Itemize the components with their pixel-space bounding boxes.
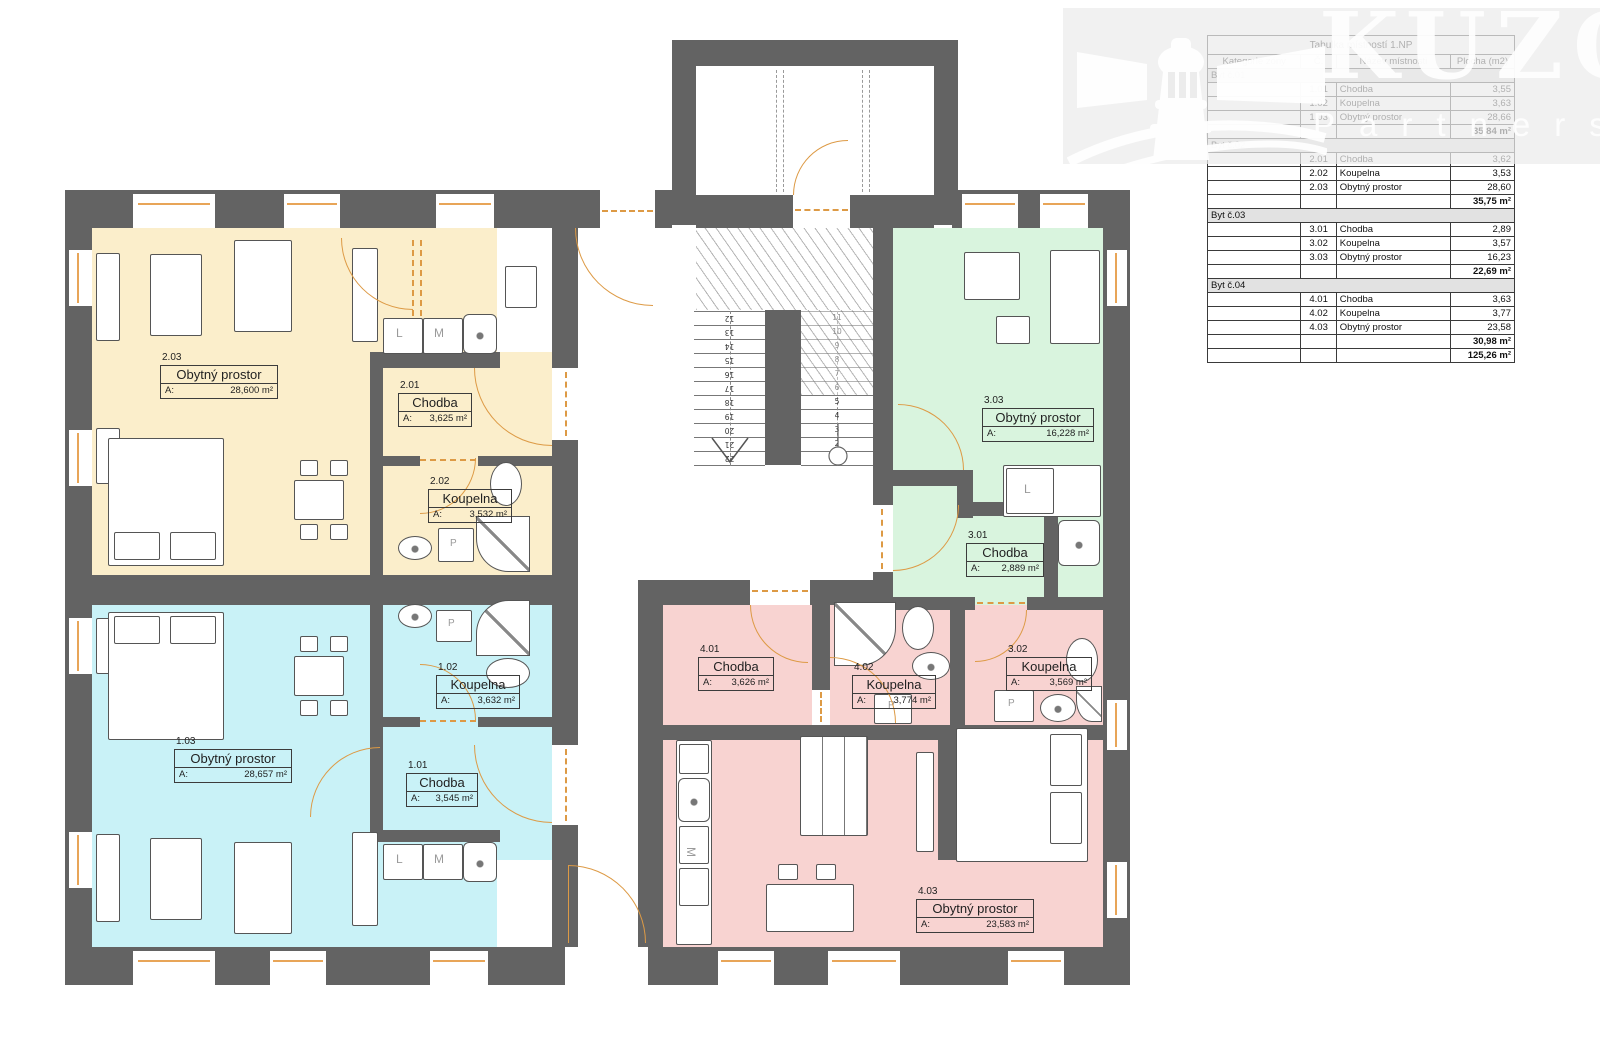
room-label-4-02: 4.02 Koupelna A:3,774 m² [852, 662, 936, 709]
span: 3,545 m² [436, 793, 474, 804]
table-cell: 3,63 [1451, 97, 1515, 111]
code: 4.01 [700, 644, 774, 655]
nm: Koupelna [437, 676, 519, 694]
room-label-3-03: 3.03 Obytný prostor A:16,228 m² [982, 395, 1094, 442]
table-cell: Tabulka místností 1.NP [1208, 36, 1515, 55]
lbox: Obytný prostor A:28,600 m² [160, 365, 278, 399]
table-cell: Obytný prostor [1336, 181, 1450, 195]
table-row: 4.03Obytný prostor23,58 [1208, 321, 1515, 335]
ar: A:3,774 m² [853, 694, 935, 708]
table-cell: 3,53 [1451, 167, 1515, 181]
table-cell: Chodba [1336, 153, 1450, 167]
code: 3.02 [1008, 644, 1092, 655]
room-label-2-02: 2.02 Koupelna A:3,532 m² [428, 476, 512, 523]
nm: Obytný prostor [983, 409, 1093, 427]
table-row: 1.02Koupelna3,63 [1208, 97, 1515, 111]
lbox: Chodba A:3,625 m² [398, 393, 472, 427]
table-cell [1336, 349, 1450, 363]
table-cell [1336, 265, 1450, 279]
table-cell [1208, 321, 1301, 335]
table-cell [1208, 153, 1301, 167]
ar: A:23,583 m² [917, 918, 1033, 932]
ar: A:16,228 m² [983, 427, 1093, 441]
table-cell: Koupelna [1336, 237, 1450, 251]
table-cell [1208, 181, 1301, 195]
ar: A:2,889 m² [967, 562, 1043, 576]
table-cell: 3,77 [1451, 307, 1515, 321]
table-header-cell: Kategorie zóny [1208, 55, 1301, 69]
table-row: 2.02Koupelna3,53 [1208, 167, 1515, 181]
table-cell: Byt č.04 [1208, 279, 1515, 293]
nm: Chodba [399, 394, 471, 412]
table-cell: 4.03 [1301, 321, 1336, 335]
table-cell: 16,23 [1451, 251, 1515, 265]
table-row: 3.03Obytný prostor16,23 [1208, 251, 1515, 265]
span: 2,889 m² [1002, 563, 1040, 574]
code: 3.01 [968, 530, 1044, 541]
table-row: Byt č.04 [1208, 279, 1515, 293]
table-cell: 3.02 [1301, 237, 1336, 251]
table-cell: 3,55 [1451, 83, 1515, 97]
table-row: Byt č.02 [1208, 139, 1515, 153]
span: A: [1011, 677, 1020, 688]
table-cell: 4.02 [1301, 307, 1336, 321]
room-label-1-01: 1.01 Chodba A:3,545 m² [406, 760, 478, 807]
table-cell: Koupelna [1336, 307, 1450, 321]
table-cell: 3,57 [1451, 237, 1515, 251]
ar: A:28,600 m² [161, 384, 277, 398]
table-row: Kategorie zónyČ.Název místnostiPlocha (m… [1208, 55, 1515, 69]
nm: Obytný prostor [917, 900, 1033, 918]
span: A: [857, 695, 866, 706]
span: 23,583 m² [986, 919, 1029, 930]
span: A: [165, 385, 174, 396]
span: 28,657 m² [244, 769, 287, 780]
table-cell: Byt č.01 [1208, 69, 1515, 83]
table-cell [1208, 125, 1301, 139]
table: Tabulka místností 1.NPKategorie zónyČ.Ná… [1207, 35, 1515, 363]
code: 3.03 [984, 395, 1094, 406]
table-cell [1208, 307, 1301, 321]
nm: Obytný prostor [161, 366, 277, 384]
ar: A:3,532 m² [429, 508, 511, 522]
table-row: 4.02Koupelna3,77 [1208, 307, 1515, 321]
span: A: [703, 677, 712, 688]
lbox: Koupelna A:3,569 m² [1006, 657, 1092, 691]
lbox: Obytný prostor A:16,228 m² [982, 408, 1094, 442]
ar: A:28,657 m² [175, 768, 291, 782]
table-cell [1336, 125, 1450, 139]
ar: A:3,632 m² [437, 694, 519, 708]
table-row: 1.03Obytný prostor28,66 [1208, 111, 1515, 125]
room-schedule-table: Tabulka místností 1.NPKategorie zónyČ.Ná… [1207, 35, 1515, 363]
lbox: Obytný prostor A:23,583 m² [916, 899, 1034, 933]
code: 1.03 [176, 736, 292, 747]
table-cell [1336, 195, 1450, 209]
span: A: [987, 428, 996, 439]
span: 3,632 m² [478, 695, 516, 706]
table-cell: 3,62 [1451, 153, 1515, 167]
nm: Chodba [967, 544, 1043, 562]
code: 2.01 [400, 380, 472, 391]
room-label-1-02: 1.02 Koupelna A:3,632 m² [436, 662, 520, 709]
code: 4.02 [854, 662, 936, 673]
table-cell: Chodba [1336, 83, 1450, 97]
ar: A:3,626 m² [699, 676, 773, 690]
table-cell: 28,66 [1451, 111, 1515, 125]
table-row: Byt č.03 [1208, 209, 1515, 223]
table-cell [1301, 335, 1336, 349]
lbox: Obytný prostor A:28,657 m² [174, 749, 292, 783]
table-row: Tabulka místností 1.NP [1208, 36, 1515, 55]
table-cell [1208, 293, 1301, 307]
table-cell: 4.01 [1301, 293, 1336, 307]
table-cell: 1.01 [1301, 83, 1336, 97]
path [712, 438, 748, 462]
nm: Koupelna [853, 676, 935, 694]
table-cell: Byt č.02 [1208, 139, 1515, 153]
room-label-3-01: 3.01 Chodba A:2,889 m² [966, 530, 1044, 577]
table-cell: 2.02 [1301, 167, 1336, 181]
circle [829, 447, 847, 465]
table-cell [1208, 97, 1301, 111]
span: 3,625 m² [430, 413, 468, 424]
table-cell [1208, 251, 1301, 265]
table-header-cell: Název místnosti [1336, 55, 1450, 69]
table-cell: 35,75 m² [1451, 195, 1515, 209]
table-row: 3.02Koupelna3,57 [1208, 237, 1515, 251]
table-cell: 1.02 [1301, 97, 1336, 111]
table-cell: 1.03 [1301, 111, 1336, 125]
table-cell: 22,69 m² [1451, 265, 1515, 279]
table-cell: Obytný prostor [1336, 321, 1450, 335]
span: A: [921, 919, 930, 930]
table-cell: 28,60 [1451, 181, 1515, 195]
table-cell: 2.01 [1301, 153, 1336, 167]
table-cell [1208, 195, 1301, 209]
nm: Chodba [407, 774, 477, 792]
span: 3,626 m² [732, 677, 770, 688]
span: 3,569 m² [1050, 677, 1088, 688]
table-row: 2.03Obytný prostor28,60 [1208, 181, 1515, 195]
table-cell: Chodba [1336, 293, 1450, 307]
table-cell [1208, 223, 1301, 237]
table-cell: Koupelna [1336, 167, 1450, 181]
table-cell: 30,98 m² [1451, 335, 1515, 349]
span: 28,600 m² [230, 385, 273, 396]
table-cell: 2.03 [1301, 181, 1336, 195]
table-row: 3.01Chodba2,89 [1208, 223, 1515, 237]
lbox: Chodba A:3,545 m² [406, 773, 478, 807]
table-row: 2.01Chodba3,62 [1208, 153, 1515, 167]
lbox: Koupelna A:3,774 m² [852, 675, 936, 709]
table-cell [1336, 335, 1450, 349]
span: A: [433, 509, 442, 520]
table-cell [1208, 167, 1301, 181]
table-row: 4.01Chodba3,63 [1208, 293, 1515, 307]
nm: Koupelna [1007, 658, 1091, 676]
ar: A:3,545 m² [407, 792, 477, 806]
table-cell [1301, 265, 1336, 279]
table-row: 22,69 m² [1208, 265, 1515, 279]
nm: Koupelna [429, 490, 511, 508]
table-cell: 2,89 [1451, 223, 1515, 237]
lbox: Chodba A:2,889 m² [966, 543, 1044, 577]
table-cell [1208, 111, 1301, 125]
table-cell [1301, 195, 1336, 209]
code: 2.02 [430, 476, 512, 487]
room-label-4-03: 4.03 Obytný prostor A:23,583 m² [916, 886, 1034, 933]
nm: Obytný prostor [175, 750, 291, 768]
table-row: 35,84 m² [1208, 125, 1515, 139]
span: A: [179, 769, 188, 780]
table-row: 30,98 m² [1208, 335, 1515, 349]
span: 3,774 m² [894, 695, 932, 706]
table-cell [1208, 83, 1301, 97]
table-cell: Chodba [1336, 223, 1450, 237]
span: 16,228 m² [1046, 428, 1089, 439]
span: A: [411, 793, 420, 804]
table-cell: Koupelna [1336, 97, 1450, 111]
table-cell [1208, 237, 1301, 251]
table-row: 125,26 m² [1208, 349, 1515, 363]
room-label-1-03: 1.03 Obytný prostor A:28,657 m² [174, 736, 292, 783]
nm: Chodba [699, 658, 773, 676]
table-cell: Obytný prostor [1336, 111, 1450, 125]
table-cell: 3,63 [1451, 293, 1515, 307]
room-label-2-03: 2.03 Obytný prostor A:28,600 m² [160, 352, 278, 399]
span: A: [971, 563, 980, 574]
table-cell: 125,26 m² [1451, 349, 1515, 363]
table-cell: Obytný prostor [1336, 251, 1450, 265]
span: 3,532 m² [470, 509, 508, 520]
table-header-cell: Plocha (m2) [1451, 55, 1515, 69]
table-cell [1301, 349, 1336, 363]
table-cell [1208, 265, 1301, 279]
table-row: 35,75 m² [1208, 195, 1515, 209]
table-row: Byt č.01 [1208, 69, 1515, 83]
table-cell: 3.01 [1301, 223, 1336, 237]
ar: A:3,569 m² [1007, 676, 1091, 690]
code: 2.03 [162, 352, 278, 363]
span: A: [441, 695, 450, 706]
room-label-4-01: 4.01 Chodba A:3,626 m² [698, 644, 774, 691]
table-cell [1208, 335, 1301, 349]
table-row: 1.01Chodba3,55 [1208, 83, 1515, 97]
span: A: [403, 413, 412, 424]
table-header-cell: Č. [1301, 55, 1336, 69]
table-cell: 3.03 [1301, 251, 1336, 265]
code: 4.03 [918, 886, 1034, 897]
lbox: Koupelna A:3,632 m² [436, 675, 520, 709]
table-cell: 23,58 [1451, 321, 1515, 335]
code: 1.02 [438, 662, 520, 673]
lbox: Koupelna A:3,532 m² [428, 489, 512, 523]
code: 1.01 [408, 760, 478, 771]
table-cell: Byt č.03 [1208, 209, 1515, 223]
table-cell [1208, 349, 1301, 363]
room-label-3-02: 3.02 Koupelna A:3,569 m² [1006, 644, 1092, 691]
ar: A:3,625 m² [399, 412, 471, 426]
table-cell: 35,84 m² [1451, 125, 1515, 139]
room-label-2-01: 2.01 Chodba A:3,625 m² [398, 380, 472, 427]
lbox: Chodba A:3,626 m² [698, 657, 774, 691]
table-cell [1301, 125, 1336, 139]
